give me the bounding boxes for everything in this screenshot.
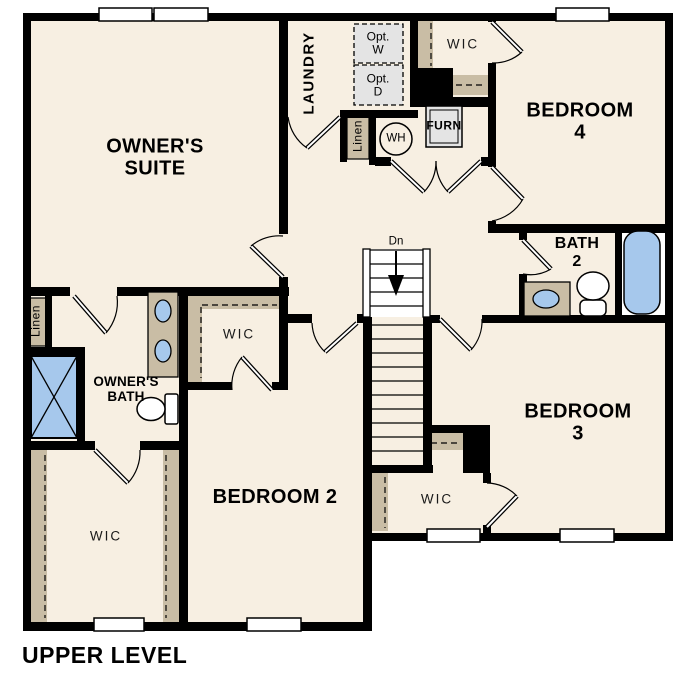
optional-dryer-label: Opt. D: [367, 72, 390, 97]
bath2-vanity: [524, 282, 570, 316]
furnace-label: FURN: [426, 119, 461, 132]
room-label-bedroom-3: BEDROOM 3: [524, 401, 633, 446]
bathtub: [624, 231, 660, 314]
closet-label-linen-laundry: Linen: [351, 120, 364, 152]
closet-label-wic-top: WIC: [447, 36, 479, 51]
closet-label-wic-bedroom3: WIC: [421, 491, 453, 506]
optional-washer-label: Opt. W: [367, 30, 390, 55]
floor-plan: OWNER'S SUITE BEDROOM 4 BEDROOM 3 BEDROO…: [0, 0, 687, 687]
room-label-bedroom-2: BEDROOM 2: [213, 486, 338, 508]
room-label-bath-2: BATH 2: [555, 235, 599, 271]
bath2-toilet: [577, 272, 609, 316]
room-label-laundry: LAUNDRY: [302, 31, 319, 114]
shower: [31, 356, 77, 438]
closet-label-wic-bedroom2: WIC: [223, 326, 255, 341]
room-label-owners-suite: OWNER'S SUITE: [106, 136, 204, 181]
room-label-owners-bath: OWNER'S BATH: [93, 374, 158, 404]
water-heater-label: WH: [386, 133, 405, 146]
owners-vanity: [148, 292, 178, 377]
closet-label-wic-owners: WIC: [90, 528, 122, 543]
closet-label-linen-hall: Linen: [29, 305, 42, 337]
plan-title: UPPER LEVEL: [22, 642, 187, 669]
stairs-direction-label: Dn: [389, 236, 404, 249]
room-label-bedroom-4: BEDROOM 4: [526, 100, 633, 145]
